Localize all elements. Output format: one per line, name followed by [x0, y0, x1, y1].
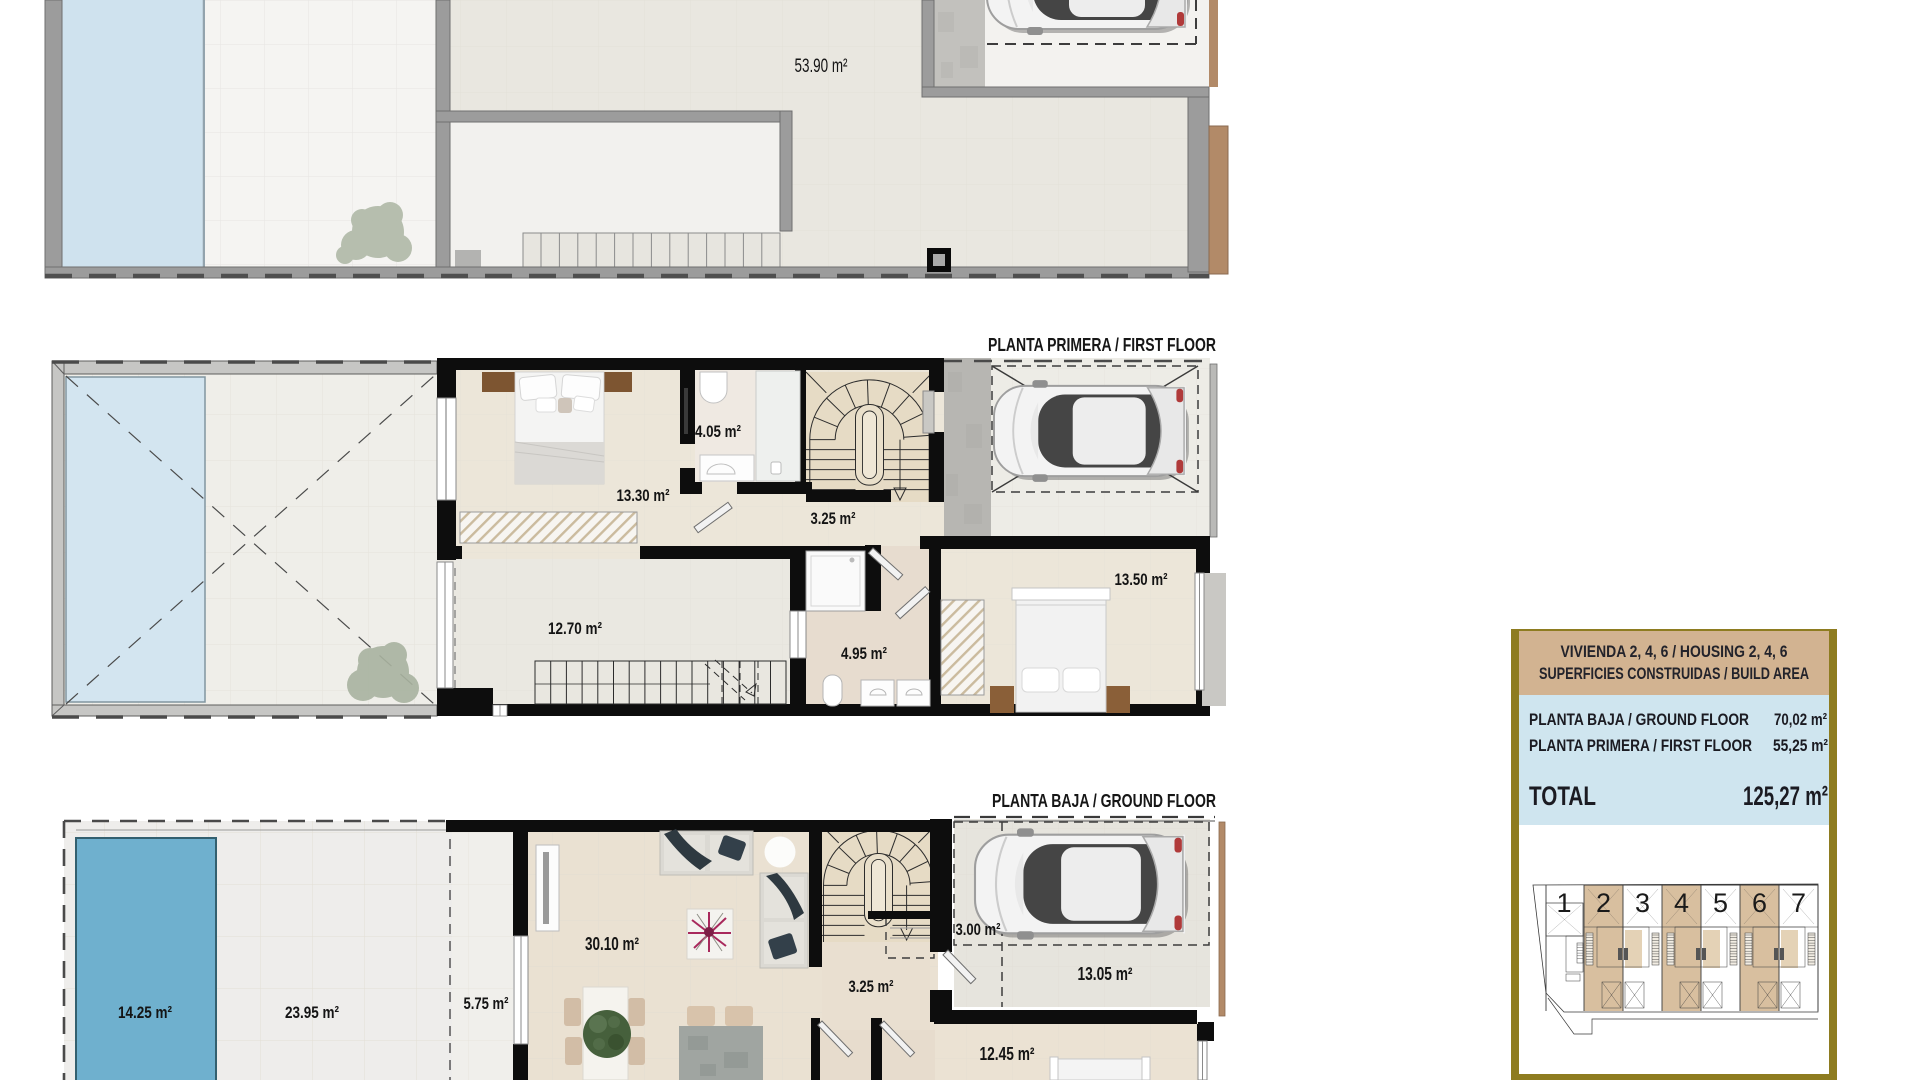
svg-text:13.50 m²: 13.50 m² — [1115, 570, 1168, 589]
svg-text:4.05 m²: 4.05 m² — [695, 422, 741, 441]
svg-text:30.10 m²: 30.10 m² — [585, 934, 639, 954]
svg-text:5.75 m²: 5.75 m² — [464, 994, 509, 1013]
svg-text:13.05 m²: 13.05 m² — [1078, 964, 1133, 984]
svg-text:3: 3 — [1635, 888, 1650, 918]
svg-text:5: 5 — [1713, 888, 1728, 918]
svg-text:6: 6 — [1752, 888, 1767, 918]
svg-text:23.95 m²: 23.95 m² — [285, 1003, 339, 1022]
svg-text:14.25 m²: 14.25 m² — [118, 1003, 172, 1022]
svg-text:TOTAL: TOTAL — [1529, 781, 1596, 811]
svg-text:3.00 m²: 3.00 m² — [956, 920, 1001, 939]
svg-text:125,27 m²: 125,27 m² — [1743, 781, 1828, 811]
svg-text:SUPERFICIES CONSTRUIDAS / BUIL: SUPERFICIES CONSTRUIDAS / BUILD AREA — [1539, 664, 1809, 683]
svg-text:4.95 m²: 4.95 m² — [841, 644, 887, 663]
svg-text:3.25 m²: 3.25 m² — [849, 977, 894, 996]
svg-text:53.90 m²: 53.90 m² — [795, 56, 848, 77]
svg-text:70,02 m²: 70,02 m² — [1774, 710, 1827, 729]
svg-text:12.45 m²: 12.45 m² — [980, 1044, 1035, 1064]
svg-text:PLANTA BAJA / GROUND FLOOR: PLANTA BAJA / GROUND FLOOR — [1529, 710, 1749, 729]
svg-text:12.70 m²: 12.70 m² — [548, 619, 602, 638]
svg-text:13.30 m²: 13.30 m² — [617, 486, 670, 505]
svg-text:1: 1 — [1556, 888, 1571, 918]
svg-text:55,25 m²: 55,25 m² — [1773, 736, 1828, 755]
svg-text:PLANTA BAJA / GROUND FLOOR: PLANTA BAJA / GROUND FLOOR — [992, 791, 1216, 811]
svg-text:PLANTA PRIMERA / FIRST FLOOR: PLANTA PRIMERA / FIRST FLOOR — [988, 335, 1216, 355]
svg-text:2: 2 — [1596, 888, 1611, 918]
svg-text:3.25 m²: 3.25 m² — [811, 509, 856, 528]
svg-text:VIVIENDA 2, 4, 6 / HOUSING 2,: VIVIENDA 2, 4, 6 / HOUSING 2, 4, 6 — [1561, 642, 1788, 661]
svg-text:4: 4 — [1674, 888, 1689, 918]
svg-text:PLANTA PRIMERA / FIRST FLOOR: PLANTA PRIMERA / FIRST FLOOR — [1529, 736, 1752, 755]
svg-text:7: 7 — [1791, 888, 1806, 918]
